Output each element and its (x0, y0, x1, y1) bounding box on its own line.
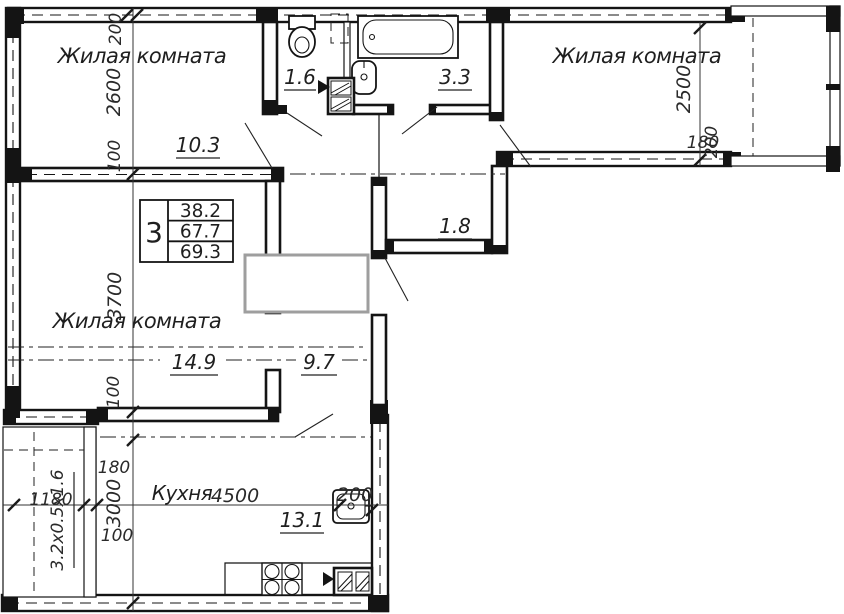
dim-wall-bottom-100: 100 (101, 526, 133, 546)
corridor-area: 9.7 (303, 350, 335, 374)
dim-kitchen-3000: 3000 (103, 479, 125, 527)
hallway-area: 1.8 (439, 214, 471, 238)
dim-kitchen-wall-200: 200 (337, 484, 373, 506)
kitchen-area: 13.1 (280, 508, 325, 532)
dim-room-right-2500: 2500 (673, 65, 695, 113)
kitchen-name: Кухня (152, 481, 213, 505)
watermark-box (245, 255, 368, 312)
dim-wall-low: 100 (104, 376, 124, 408)
info-table: 3 38.2 67.7 69.3 (140, 200, 233, 263)
vent-arrow-icon (323, 572, 334, 586)
info-living-area: 38.2 (180, 201, 221, 222)
dim-room1-width: 2600 (103, 68, 125, 116)
door-swing-wc (287, 113, 322, 136)
door-swing-kitchen (295, 414, 333, 437)
dim-balcony-size: 3.2х0.5х1.6 (48, 469, 68, 570)
dim-wall-top: 200 (106, 13, 126, 45)
floor-plan-page: 200 2600 100 3700 100 180 3000 100 1180 … (0, 0, 844, 614)
room-top-left-area: 10.3 (176, 133, 221, 157)
bath-area: 3.3 (439, 65, 471, 89)
info-total-area: 69.3 (180, 242, 221, 263)
toilet (289, 16, 315, 57)
wc-area: 1.6 (284, 65, 316, 89)
info-apartment-area: 67.7 (180, 222, 221, 243)
room-top-left-name: Жилая комната (56, 44, 226, 68)
bathtub (358, 16, 458, 58)
room-top-right-name: Жилая комната (551, 44, 721, 68)
door-swing-entrance (385, 258, 408, 301)
dim-right-200: 200 (702, 126, 722, 158)
dim-kitchen-4500: 4500 (211, 485, 259, 507)
room-mid-left-name: Жилая комната (51, 309, 221, 333)
info-room-count: 3 (145, 216, 163, 249)
door-swing-room-top-left (245, 123, 272, 168)
washbasin (352, 61, 376, 94)
stove (262, 563, 302, 595)
dim-gap-180: 180 (98, 458, 130, 478)
door-swing-bath (402, 107, 437, 134)
balcony-top-right (731, 6, 840, 172)
ventilation-shaft-bath (318, 78, 354, 114)
floor-plan-drawing: 200 2600 100 3700 100 180 3000 100 1180 … (0, 0, 844, 614)
room-mid-left-area: 14.9 (172, 350, 217, 374)
dim-wall-mid: 100 (105, 140, 125, 172)
ventilation-shaft-kitchen (323, 568, 372, 595)
